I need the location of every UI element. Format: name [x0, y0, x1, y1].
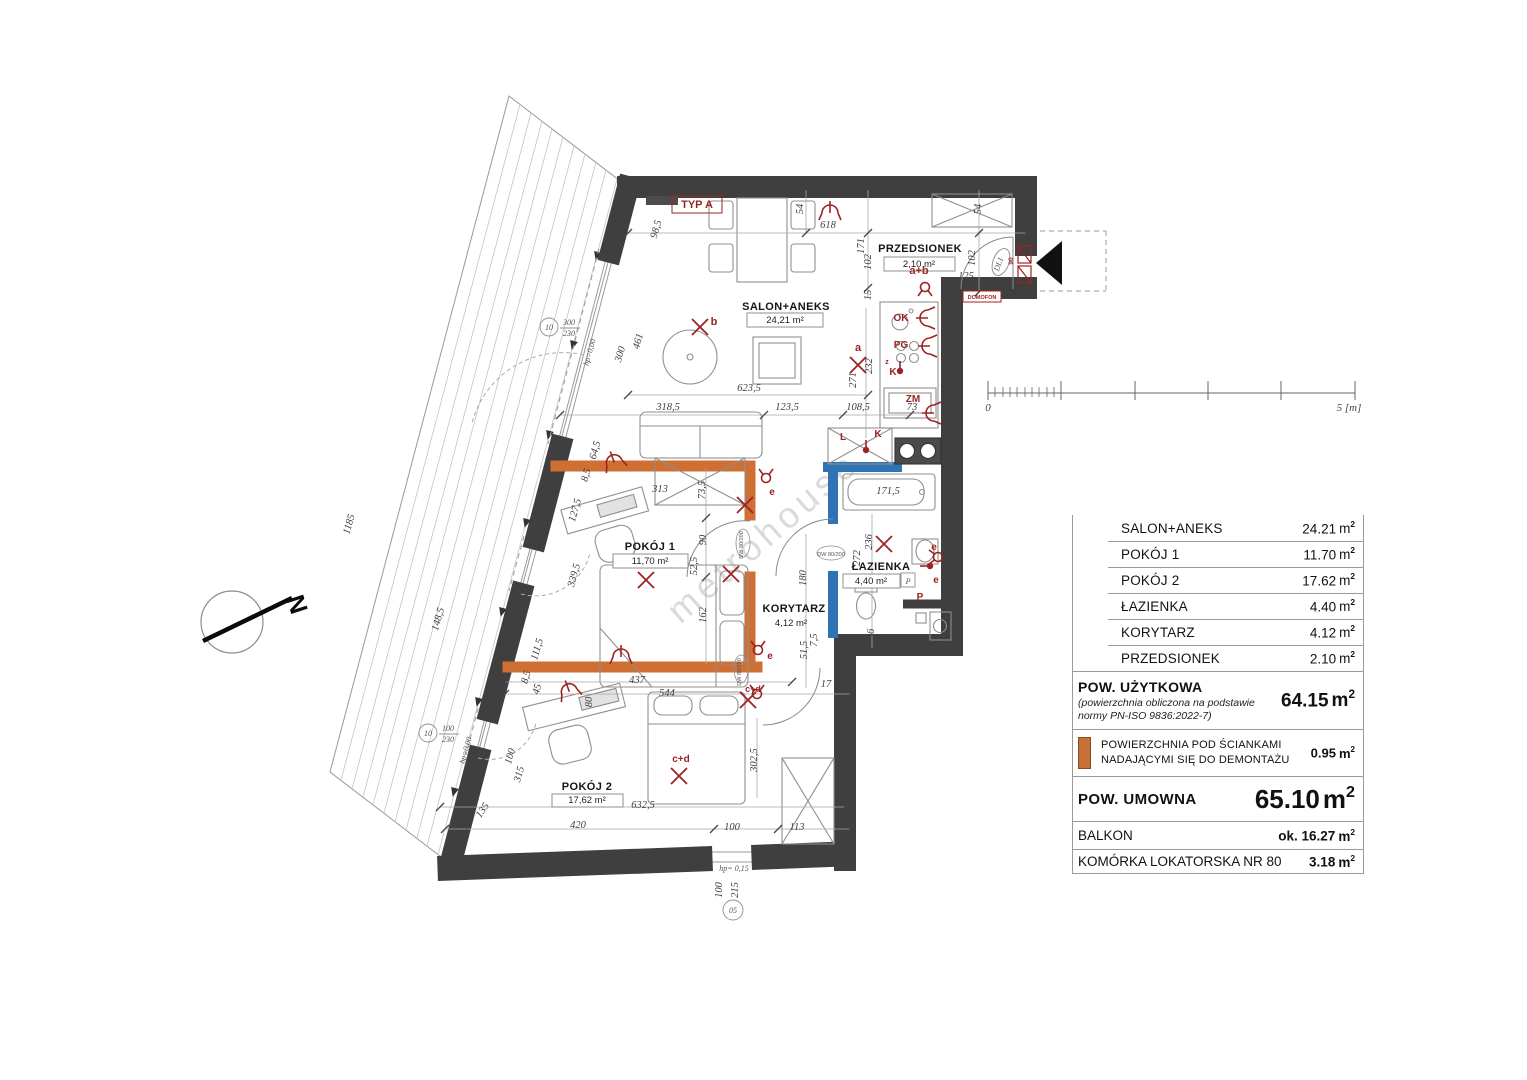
room-area-value: 4.12m2 — [1310, 624, 1355, 641]
door-size-label: DW 80/200 — [739, 531, 745, 559]
dimension-label: 54 — [973, 203, 984, 214]
scale-max-label: 5 [m] — [1337, 402, 1362, 414]
dimension-label: 232 — [864, 357, 875, 374]
dimension-label: 632,5 — [631, 800, 655, 811]
room-area-label: POKÓJ 1 — [1121, 547, 1303, 562]
plan-note: 10 — [545, 323, 553, 332]
dimension-label: 215 — [730, 882, 741, 898]
dimension-label: 36 — [866, 628, 877, 640]
dimension-label: 15 — [945, 286, 956, 297]
contract-area-value: 65.10m2 — [1255, 784, 1355, 815]
storage-value: 3.18m2 — [1309, 853, 1355, 870]
red-annotation: z — [885, 359, 889, 366]
dimension-label: 17 — [821, 679, 832, 690]
demountable-area-value: 0.95m2 — [1311, 745, 1355, 760]
tv-cabinet — [753, 337, 801, 384]
contract-area-section: POW. UMOWNA 65.10m2 — [1073, 776, 1363, 821]
wardrobe — [932, 194, 1012, 227]
room-area-label: ŁAZIENKA — [1121, 599, 1310, 614]
room-area-value: 2.10m2 — [1310, 650, 1355, 667]
demountable-wall-swatch-icon — [1078, 737, 1091, 769]
dimension-label: 125 — [958, 271, 974, 282]
dimension-label: 302,5 — [749, 748, 760, 773]
demountable-area-label: POWIERZCHNIA POD ŚCIANKAMI NADAJĄCYMI SI… — [1101, 738, 1290, 768]
dimension-label: 113 — [790, 822, 805, 833]
dimension-label: 64,5 — [588, 440, 604, 461]
dimension-label: 51,5 — [799, 641, 810, 659]
usable-area-value: 64.15m2 — [1281, 689, 1355, 712]
red-annotation: e — [931, 542, 937, 553]
red-annotation: TYP A — [681, 199, 713, 211]
scale-zero-label: 0 — [985, 402, 991, 414]
dimension-label: 236 — [864, 533, 875, 550]
dimension-label: 300 — [613, 345, 628, 365]
dimension-label: 54 — [795, 203, 806, 214]
room-area-row: KORYTARZ4.12m2 — [1073, 619, 1363, 645]
room-area-label: 24,21 m² — [766, 315, 804, 326]
storage-label: KOMÓRKA LOKATORSKA NR 80 — [1078, 854, 1282, 869]
room-area-label: 17,62 m² — [568, 795, 606, 806]
dimension-label: 437 — [629, 675, 646, 686]
room-area-label: 4,40 m² — [855, 576, 887, 587]
usable-area-title: POW. UŻYTKOWA — [1078, 679, 1255, 695]
chair — [546, 723, 593, 767]
room-name-label: POKÓJ 2 — [562, 780, 613, 793]
north-arrow: N — [201, 591, 313, 653]
room-area-label: 11,70 m² — [632, 556, 669, 567]
balcony-value: ok. 16.27m2 — [1278, 827, 1355, 844]
dimension-label: 318,5 — [655, 402, 680, 413]
dimension-label: 271 — [848, 372, 859, 388]
room-name-label: POKÓJ 1 — [625, 540, 676, 553]
scale-bar: 0 5 [m] — [985, 381, 1361, 414]
plan-note: hp= 0,15 — [719, 864, 748, 873]
red-annotation: L — [840, 432, 846, 443]
room-area-rows: SALON+ANEKS24.21m2POKÓJ 111.70m2POKÓJ 21… — [1073, 515, 1363, 671]
sofa — [640, 412, 762, 458]
dimension-label: 7,5 — [809, 633, 820, 646]
dimension-label: 98,5 — [649, 219, 665, 240]
dimension-label: 80 — [584, 696, 595, 707]
red-annotation: P — [917, 592, 924, 603]
red-annotation: c+d — [672, 754, 690, 765]
dimension-label: 123,5 — [775, 402, 799, 413]
room-area-row: PRZEDSIONEK2.10m2 — [1073, 645, 1363, 671]
room-name-label: SALON+ANEKS — [742, 301, 830, 313]
coffee-table — [663, 330, 717, 384]
dimension-label: 90 — [698, 534, 709, 545]
dimension-label: 171,5 — [876, 486, 900, 497]
dimension-label: 1185 — [342, 513, 358, 535]
dimension-label: 339,5 — [566, 562, 583, 589]
balcony-label: BALKON — [1078, 828, 1133, 843]
usable-area-note: (powierzchnia obliczona na podstawie nor… — [1078, 697, 1255, 722]
room-area-value: 11.70m2 — [1303, 546, 1355, 563]
dimension-label: 623,5 — [737, 383, 761, 394]
dimension-label: 420 — [570, 820, 587, 831]
plan-note: 230 — [442, 735, 454, 744]
room-area-label: PRZEDSIONEK — [1121, 651, 1310, 666]
room-area-label: 4,12 m² — [775, 618, 807, 629]
area-legend-table: SALON+ANEKS24.21m2POKÓJ 111.70m2POKÓJ 21… — [1072, 515, 1364, 874]
chair — [791, 244, 815, 272]
door-size-label: DW 80/200 — [817, 552, 845, 558]
dimension-label: 544 — [659, 688, 676, 699]
dimension-label: 73,5 — [697, 481, 708, 499]
north-label: N — [281, 592, 313, 618]
room-name-label: KORYTARZ — [762, 603, 825, 615]
dimension-label: 315 — [512, 765, 527, 784]
dimension-label: 52,5 — [689, 557, 700, 575]
dimension-label: 272 — [852, 549, 863, 566]
red-annotation: 90 — [1008, 257, 1015, 265]
room-area-label: SALON+ANEKS — [1121, 521, 1302, 536]
room-area-row: ŁAZIENKA4.40m2 — [1073, 593, 1363, 619]
dimension-label: 102 — [863, 253, 874, 270]
dimension-label: 180 — [798, 569, 809, 586]
plan-note: 100 — [442, 724, 454, 733]
red-annotation: DOMOFON — [968, 295, 997, 301]
red-annotation: c+d — [745, 684, 761, 694]
plan-note: P — [905, 577, 911, 586]
dimension-label: 100 — [714, 881, 725, 898]
demountable-area-section: POWIERZCHNIA POD ŚCIANKAMI NADAJĄCYMI SI… — [1073, 729, 1363, 776]
dimension-label: 111,5 — [529, 637, 546, 661]
exterior-wall-bottom — [450, 854, 843, 868]
bed — [648, 692, 745, 804]
toilet — [855, 584, 877, 619]
red-annotation: K — [874, 429, 882, 440]
dimension-label: 127,5 — [567, 497, 584, 523]
room-area-label: KORYTARZ — [1121, 625, 1310, 640]
room-area-value: 17.62m2 — [1302, 572, 1355, 589]
radiator — [646, 196, 678, 205]
usable-area-section: POW. UŻYTKOWA (powierzchnia obliczona na… — [1073, 671, 1363, 729]
room-area-row: POKÓJ 111.70m2 — [1073, 541, 1363, 567]
dimension-label: 618 — [820, 220, 837, 231]
red-annotation: OK — [894, 313, 910, 324]
usable-area-note-line2: normy PN-ISO 9836:2022-7) — [1078, 710, 1212, 722]
balcony-area-row: BALKON ok. 16.27m2 — [1073, 821, 1363, 849]
plan-note: 05 — [729, 906, 737, 915]
room-area-row: POKÓJ 217.62m2 — [1073, 567, 1363, 593]
red-annotation: K — [889, 367, 897, 378]
dimension-label: 108,5 — [846, 402, 870, 413]
room-area-label: POKÓJ 2 — [1121, 573, 1302, 588]
dimension-label: 100 — [724, 822, 741, 833]
red-annotation: a — [855, 342, 862, 354]
dimension-label: 102 — [967, 249, 978, 266]
dimension-label: 461 — [631, 332, 646, 350]
room-name-label: PRZEDSIONEK — [878, 243, 962, 255]
dimension-label: 162 — [698, 606, 709, 623]
red-annotation: b — [711, 316, 718, 328]
room-area-value: 24.21m2 — [1302, 520, 1355, 537]
entrance-arrow — [1036, 241, 1062, 285]
dimension-label: 171 — [856, 238, 867, 254]
red-annotation: a+b — [909, 265, 929, 277]
storage-area-row: KOMÓRKA LOKATORSKA NR 80 3.18m2 — [1073, 849, 1363, 874]
red-annotation: PG — [894, 340, 909, 351]
red-annotation: e — [933, 575, 939, 586]
dining-table — [737, 198, 787, 282]
red-annotation: e — [767, 651, 773, 662]
usable-area-note-line1: (powierzchnia obliczona na podstawie — [1078, 697, 1255, 709]
plan-note: 10 — [424, 729, 432, 738]
room-area-row: SALON+ANEKS24.21m2 — [1073, 515, 1363, 541]
plan-note: 300 — [562, 318, 575, 327]
plan-note: 230 — [563, 329, 575, 338]
dimension-label: 100 — [503, 747, 518, 766]
dimension-label: 15 — [863, 290, 874, 301]
dimension-label: 313 — [651, 484, 668, 495]
red-annotation: e — [769, 487, 775, 498]
red-annotation: ZM — [906, 394, 920, 405]
chair — [709, 244, 733, 272]
door-size-label: DW 80/200 — [737, 658, 743, 686]
contract-area-title: POW. UMOWNA — [1078, 791, 1197, 808]
room-area-value: 4.40m2 — [1310, 598, 1355, 615]
